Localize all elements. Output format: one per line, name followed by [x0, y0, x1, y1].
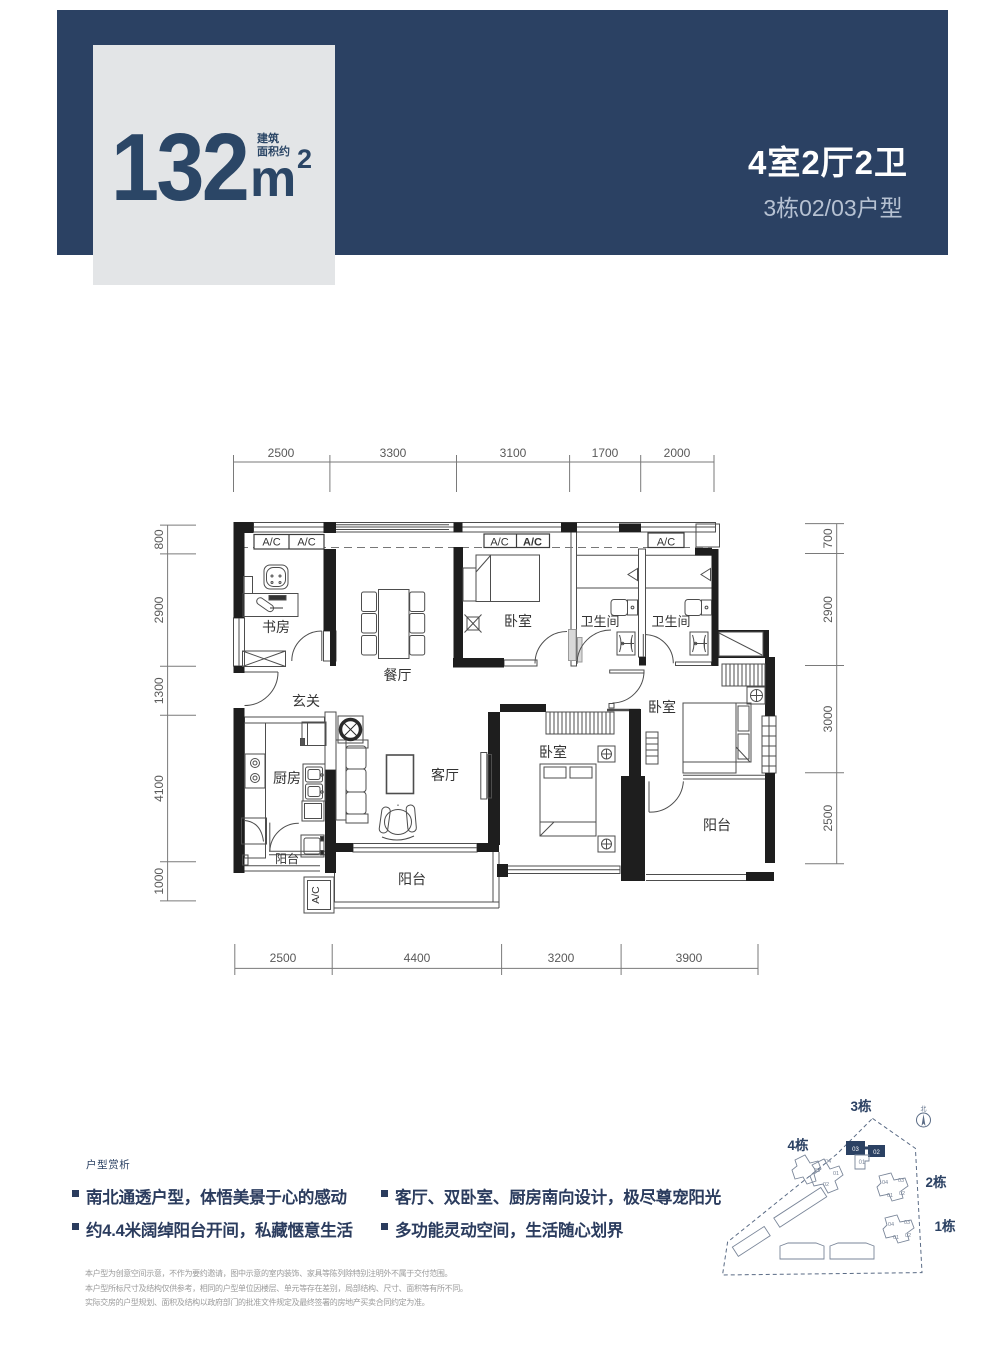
- svg-text:2900: 2900: [821, 596, 835, 623]
- svg-text:卧室: 卧室: [539, 744, 567, 760]
- svg-text:阳台: 阳台: [703, 817, 731, 833]
- svg-text:4栋: 4栋: [787, 1137, 809, 1153]
- svg-text:1300: 1300: [152, 677, 166, 704]
- svg-text:阳台: 阳台: [398, 871, 426, 887]
- svg-text:2500: 2500: [821, 805, 835, 832]
- svg-text:04: 04: [882, 1180, 888, 1186]
- svg-text:01: 01: [887, 1193, 893, 1199]
- svg-text:04: 04: [888, 1222, 894, 1228]
- svg-text:卧室: 卧室: [648, 699, 676, 715]
- svg-text:2栋: 2栋: [925, 1174, 947, 1190]
- svg-text:3900: 3900: [676, 951, 703, 965]
- svg-text:03: 03: [898, 1178, 904, 1184]
- svg-text:卫生间: 卫生间: [580, 614, 619, 629]
- svg-text:01: 01: [859, 1160, 866, 1166]
- svg-text:2000: 2000: [664, 446, 691, 460]
- svg-text:3000: 3000: [821, 705, 835, 732]
- svg-text:厨房: 厨房: [273, 770, 301, 786]
- svg-text:1700: 1700: [592, 446, 619, 460]
- svg-text:3200: 3200: [548, 951, 575, 965]
- svg-text:02: 02: [873, 1150, 880, 1156]
- svg-text:4400: 4400: [404, 951, 431, 965]
- svg-text:800: 800: [152, 529, 166, 549]
- svg-text:2500: 2500: [270, 951, 297, 965]
- svg-text:01: 01: [893, 1235, 899, 1241]
- svg-text:02: 02: [823, 1182, 829, 1188]
- svg-text:04: 04: [825, 1159, 831, 1165]
- svg-text:02: 02: [905, 1233, 911, 1239]
- svg-text:北: 北: [920, 1105, 926, 1113]
- svg-text:3栋: 3栋: [850, 1098, 872, 1114]
- svg-text:客厅: 客厅: [431, 767, 459, 783]
- svg-text:玄关: 玄关: [292, 693, 320, 709]
- svg-text:阳台: 阳台: [275, 851, 299, 866]
- svg-text:2500: 2500: [268, 446, 295, 460]
- svg-text:1000: 1000: [152, 868, 166, 895]
- svg-text:02: 02: [899, 1191, 905, 1197]
- svg-text:A/C: A/C: [310, 886, 322, 904]
- svg-text:A/C: A/C: [657, 537, 675, 549]
- svg-text:4100: 4100: [152, 775, 166, 802]
- svg-text:A/C: A/C: [523, 537, 542, 549]
- svg-text:3100: 3100: [500, 446, 527, 460]
- svg-text:卫生间: 卫生间: [651, 614, 690, 629]
- svg-text:03: 03: [904, 1220, 910, 1226]
- svg-text:2900: 2900: [152, 596, 166, 623]
- svg-text:A/C: A/C: [297, 537, 315, 549]
- svg-text:卧室: 卧室: [504, 613, 532, 629]
- svg-text:A/C: A/C: [490, 537, 508, 549]
- svg-text:书房: 书房: [262, 619, 290, 635]
- svg-text:01: 01: [833, 1171, 839, 1177]
- svg-text:700: 700: [821, 528, 835, 548]
- svg-text:A/C: A/C: [262, 537, 280, 549]
- svg-text:03: 03: [852, 1147, 859, 1153]
- svg-text:3300: 3300: [380, 446, 407, 460]
- svg-text:餐厅: 餐厅: [384, 667, 412, 683]
- svg-text:1栋: 1栋: [934, 1218, 956, 1234]
